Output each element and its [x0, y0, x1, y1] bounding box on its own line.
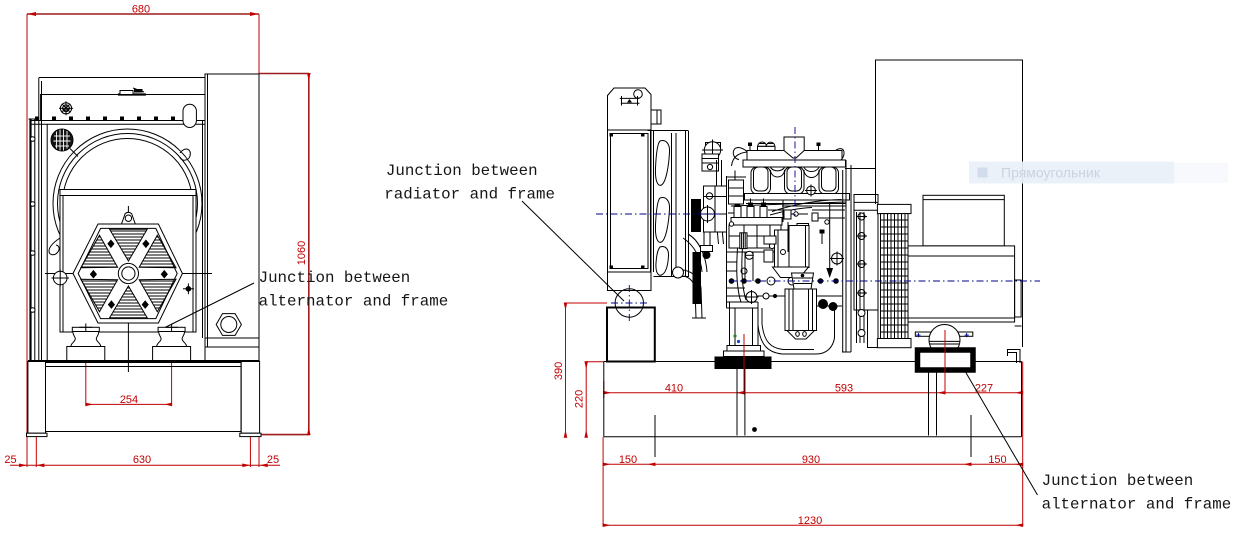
svg-text:254: 254	[120, 394, 138, 406]
svg-text:150: 150	[619, 454, 637, 466]
svg-text:220: 220	[574, 390, 586, 408]
svg-text:593: 593	[835, 383, 853, 395]
svg-text:alternator and frame: alternator and frame	[1042, 496, 1232, 514]
svg-text:1060: 1060	[296, 241, 308, 265]
svg-text:150: 150	[988, 454, 1006, 466]
svg-text:Junction between: Junction between	[386, 162, 538, 180]
svg-text:390: 390	[553, 362, 565, 380]
svg-text:1230: 1230	[798, 515, 822, 527]
svg-text:Прямоугольник: Прямоугольник	[1001, 165, 1101, 181]
svg-text:25: 25	[4, 454, 16, 466]
svg-text:Junction between: Junction between	[259, 269, 411, 287]
svg-text:radiator and frame: radiator and frame	[384, 186, 555, 204]
svg-text:410: 410	[665, 383, 683, 395]
svg-text:Junction between: Junction between	[1042, 472, 1194, 490]
svg-text:630: 630	[133, 454, 151, 466]
svg-text:680: 680	[132, 4, 150, 16]
svg-text:alternator and frame: alternator and frame	[259, 293, 449, 311]
svg-text:930: 930	[802, 454, 820, 466]
svg-text:25: 25	[267, 454, 279, 466]
